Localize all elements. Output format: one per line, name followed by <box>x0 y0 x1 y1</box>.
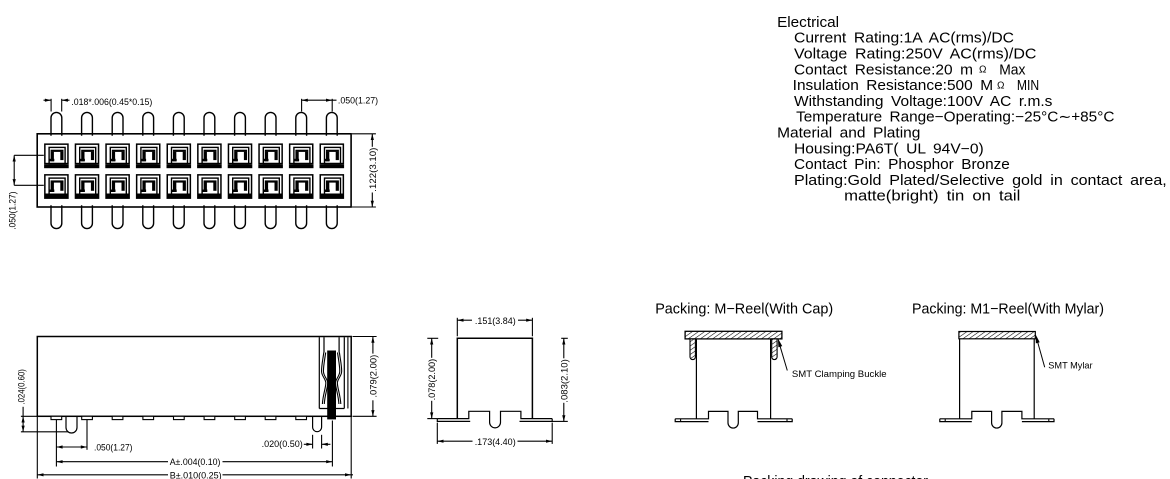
svg-text:Temperature Range−Operating:−2: Temperature Range−Operating:−25°C∼+85°C <box>796 110 1114 126</box>
svg-text:.083(2.10): .083(2.10) <box>559 359 570 403</box>
svg-text:Plating:Gold Plated/Selective: Plating:Gold Plated/Selective gold in co… <box>794 173 1167 189</box>
svg-text:Withstanding Voltage:100V AC r: Withstanding Voltage:100V AC r.m.s <box>794 94 1052 110</box>
svg-text:B±.010(0.25): B±.010(0.25) <box>170 471 222 479</box>
svg-text:matte(bright) tin on tail: matte(bright) tin on tail <box>844 189 1020 205</box>
svg-text:Electrical: Electrical <box>777 15 839 31</box>
svg-text:Max: Max <box>999 62 1026 78</box>
svg-text:SMT Clamping Buckle: SMT Clamping Buckle <box>792 369 887 379</box>
svg-text:Voltage Rating:250V AC(rms)/DC: Voltage Rating:250V AC(rms)/DC <box>794 47 1036 63</box>
svg-text:Material and Plating: Material and Plating <box>777 126 920 142</box>
svg-text:.079(2.00): .079(2.00) <box>368 355 379 398</box>
svg-text:.151(3.84): .151(3.84) <box>475 316 516 327</box>
svg-text:Ω: Ω <box>979 65 987 76</box>
svg-text:.122(3.10): .122(3.10) <box>368 148 379 192</box>
svg-text:.078(2.00): .078(2.00) <box>427 359 438 401</box>
svg-text:.173(4.40): .173(4.40) <box>475 437 516 448</box>
svg-text:Packing: M−Reel(With Cap): Packing: M−Reel(With Cap) <box>655 302 833 318</box>
svg-text:.020(0.50): .020(0.50) <box>262 439 303 450</box>
svg-text:.050(1.27): .050(1.27) <box>94 442 133 453</box>
svg-text:Contact Resistance:20 m: Contact Resistance:20 m <box>794 62 973 78</box>
svg-text:SMT Mylar: SMT Mylar <box>1048 361 1092 371</box>
svg-text:Current Rating:1A AC(rms)/DC: Current Rating:1A AC(rms)/DC <box>794 31 1014 47</box>
svg-text:MIN: MIN <box>1017 78 1039 94</box>
svg-text:.050(1.27): .050(1.27) <box>338 96 378 107</box>
svg-text:.024(0.60): .024(0.60) <box>17 369 28 405</box>
svg-text:Housing:PA6T( UL 94V−0): Housing:PA6T( UL 94V−0) <box>794 141 984 157</box>
svg-text:.050(1.27): .050(1.27) <box>8 192 19 230</box>
svg-text:A±.004(0.10): A±.004(0.10) <box>170 457 221 468</box>
svg-text:Packing: M1−Reel(With Mylar): Packing: M1−Reel(With Mylar) <box>912 302 1104 318</box>
svg-text:Insulation Resistance:500 M: Insulation Resistance:500 M <box>793 78 993 94</box>
svg-text:Packing drawing of connector: Packing drawing of connector <box>743 474 928 479</box>
svg-text:.018*.006(0.45*0.15): .018*.006(0.45*0.15) <box>71 97 152 108</box>
svg-text:Contact Pin: Phosphor Bronze: Contact Pin: Phosphor Bronze <box>794 157 1010 173</box>
svg-text:Ω: Ω <box>997 80 1005 91</box>
